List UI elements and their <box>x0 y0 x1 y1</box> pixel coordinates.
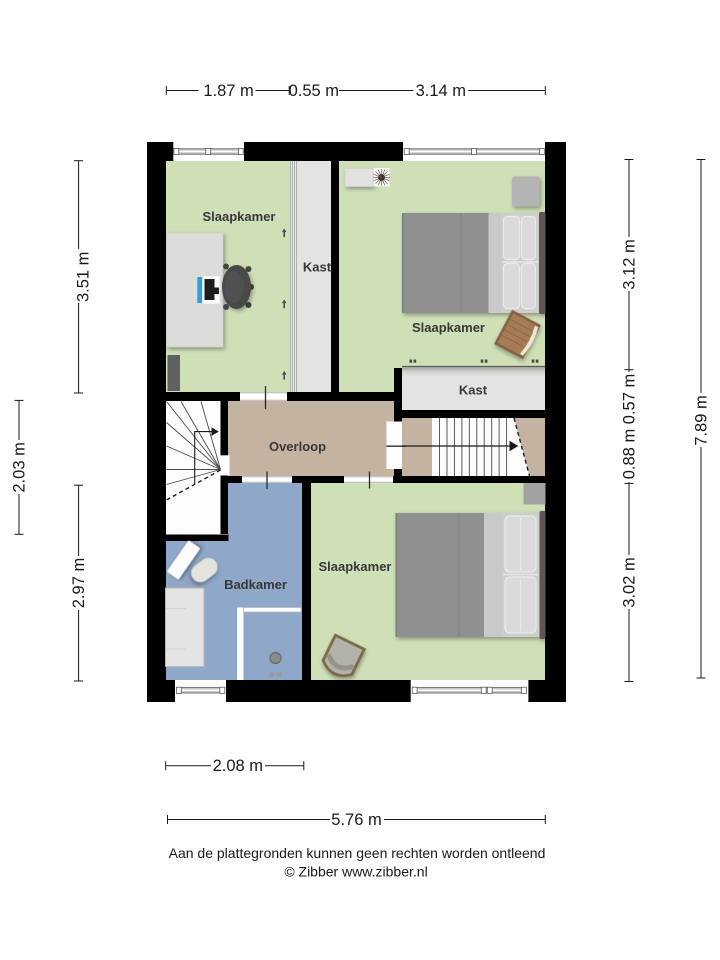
svg-text:Aan de plattegronden kunnen ge: Aan de plattegronden kunnen geen rechten… <box>169 845 546 861</box>
svg-text:Kast: Kast <box>459 383 488 398</box>
svg-text:Overloop: Overloop <box>269 439 326 454</box>
svg-text:Kast: Kast <box>303 260 332 275</box>
svg-text:Slaapkamer: Slaapkamer <box>319 559 392 574</box>
svg-text:2.03 m: 2.03 m <box>11 442 29 492</box>
svg-text:3.12 m: 3.12 m <box>621 239 639 289</box>
svg-text:3.51 m: 3.51 m <box>74 252 92 302</box>
svg-text:3.02 m: 3.02 m <box>621 557 639 607</box>
svg-text:© Zibber www.zibber.nl: © Zibber www.zibber.nl <box>284 863 427 879</box>
svg-text:0.55 m: 0.55 m <box>289 82 339 100</box>
svg-text:5.76 m: 5.76 m <box>331 811 381 829</box>
svg-text:3.14 m: 3.14 m <box>416 82 466 100</box>
svg-text:2.08 m: 2.08 m <box>213 757 263 775</box>
svg-text:7.89 m: 7.89 m <box>693 395 711 445</box>
svg-text:1.87 m: 1.87 m <box>203 82 253 100</box>
svg-text:Badkamer: Badkamer <box>224 577 287 592</box>
svg-text:Slaapkamer: Slaapkamer <box>412 320 485 335</box>
svg-text:0.88 m 0.57 m: 0.88 m 0.57 m <box>621 374 639 479</box>
svg-text:Slaapkamer: Slaapkamer <box>203 209 276 224</box>
svg-text:2.97 m: 2.97 m <box>70 558 88 608</box>
